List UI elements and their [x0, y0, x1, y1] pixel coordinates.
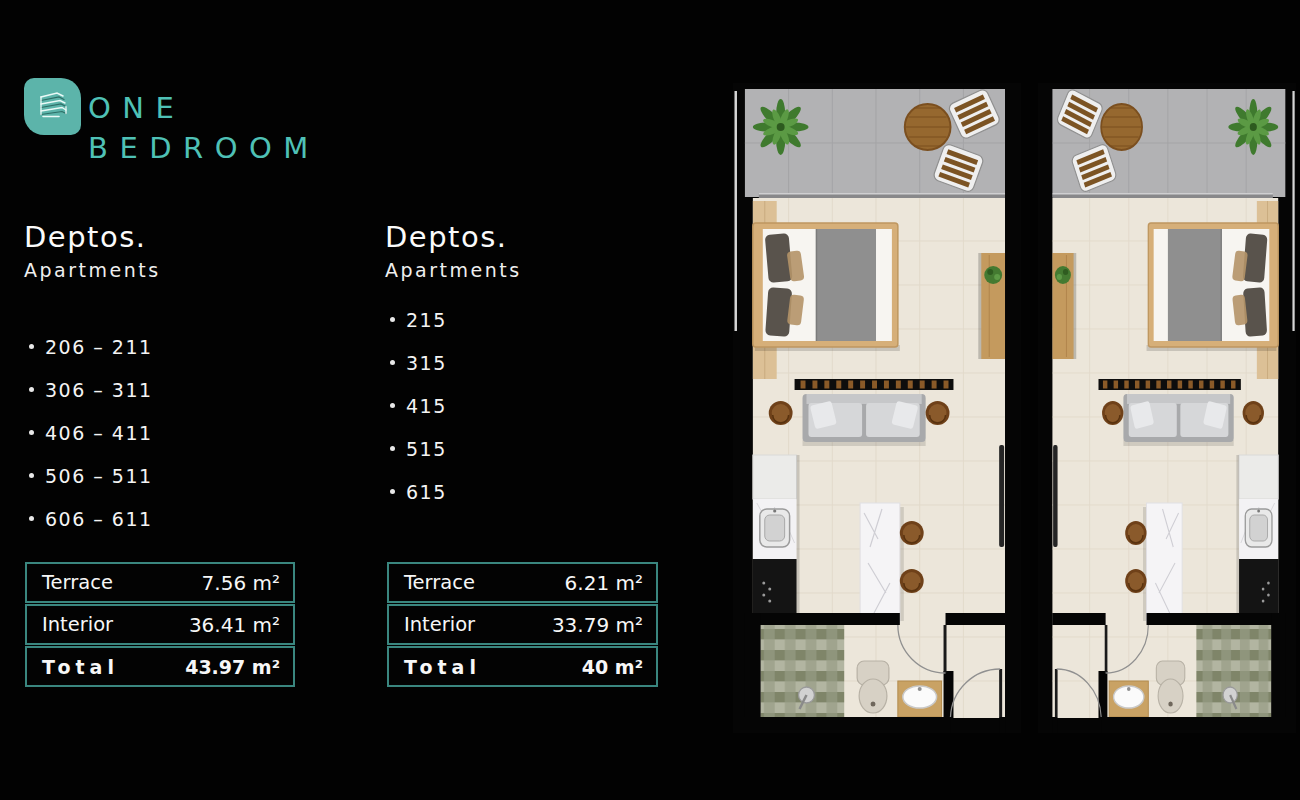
bullet-icon	[390, 360, 395, 365]
bullet-icon	[390, 317, 395, 322]
apartment-range: 206 – 211	[45, 336, 153, 358]
bullet-icon	[390, 489, 395, 494]
area-value: 7.56 m²	[202, 571, 280, 595]
group-heading-en: Apartments	[24, 259, 364, 281]
unit-floor-plan-right	[1038, 83, 1296, 733]
bullet-icon	[29, 516, 34, 521]
apartment-range: 406 – 411	[45, 422, 153, 444]
bullet-icon	[29, 430, 34, 435]
page-title: ONE BEDROOM	[88, 88, 320, 168]
area-label: Terrace	[404, 571, 475, 594]
bullet-icon	[29, 344, 34, 349]
group-heading-es: Deptos.	[385, 220, 725, 254]
brand-logo	[24, 78, 81, 135]
slide: ONE BEDROOM Deptos. Apartments 206 – 211…	[0, 0, 1300, 800]
apartment-range: 215	[406, 309, 447, 331]
area-value: 6.21 m²	[565, 571, 643, 595]
building-icon	[33, 87, 73, 127]
area-table-2: Terrace 6.21 m² Interior 33.79 m² Total …	[387, 562, 658, 688]
area-row-terrace: Terrace 6.21 m²	[387, 562, 658, 603]
apartment-range: 615	[406, 481, 447, 503]
area-row-terrace: Terrace 7.56 m²	[25, 562, 295, 603]
title-line-1: ONE	[88, 88, 320, 128]
apartment-range-item: 215	[385, 298, 725, 341]
apartment-range-item: 606 – 611	[24, 497, 364, 540]
apartment-range-item: 515	[385, 427, 725, 470]
apartment-list: 215 315 415 515 615	[385, 298, 725, 513]
bullet-icon	[29, 473, 34, 478]
title-line-2: BEDROOM	[88, 128, 320, 168]
area-value: 43.97 m²	[185, 656, 280, 678]
unit-floor-plan-left	[733, 83, 1021, 733]
group-heading-es: Deptos.	[24, 220, 364, 254]
area-label: Interior	[42, 613, 113, 636]
apartment-range-item: 415	[385, 384, 725, 427]
apartment-range: 506 – 511	[45, 465, 153, 487]
area-row-total: Total 40 m²	[387, 646, 658, 687]
apartment-range: 515	[406, 438, 447, 460]
area-row-interior: Interior 36.41 m²	[25, 604, 295, 645]
area-label: Total	[404, 656, 481, 678]
area-value: 36.41 m²	[189, 613, 280, 637]
apartments-group-1: Deptos. Apartments 206 – 211 306 – 311 4…	[24, 220, 364, 540]
area-row-interior: Interior 33.79 m²	[387, 604, 658, 645]
apartment-range-item: 315	[385, 341, 725, 384]
area-label: Total	[42, 656, 119, 678]
apartment-range: 315	[406, 352, 447, 374]
area-value: 40 m²	[582, 656, 643, 678]
apartment-range-item: 506 – 511	[24, 454, 364, 497]
apartment-range-item: 406 – 411	[24, 411, 364, 454]
apartment-range-item: 615	[385, 470, 725, 513]
apartment-range: 606 – 611	[45, 508, 153, 530]
area-label: Terrace	[42, 571, 113, 594]
apartment-list: 206 – 211 306 – 311 406 – 411 506 – 511 …	[24, 325, 364, 540]
apartments-group-2: Deptos. Apartments 215 315 415 515 615	[385, 220, 725, 513]
group-heading-en: Apartments	[385, 259, 725, 281]
apartment-range-item: 306 – 311	[24, 368, 364, 411]
area-label: Interior	[404, 613, 475, 636]
bullet-icon	[390, 446, 395, 451]
area-row-total: Total 43.97 m²	[25, 646, 295, 687]
apartment-range-item: 206 – 211	[24, 325, 364, 368]
bullet-icon	[390, 403, 395, 408]
bullet-icon	[29, 387, 34, 392]
apartment-range: 415	[406, 395, 447, 417]
area-value: 33.79 m²	[552, 613, 643, 637]
area-table-1: Terrace 7.56 m² Interior 36.41 m² Total …	[25, 562, 295, 688]
apartment-range: 306 – 311	[45, 379, 153, 401]
